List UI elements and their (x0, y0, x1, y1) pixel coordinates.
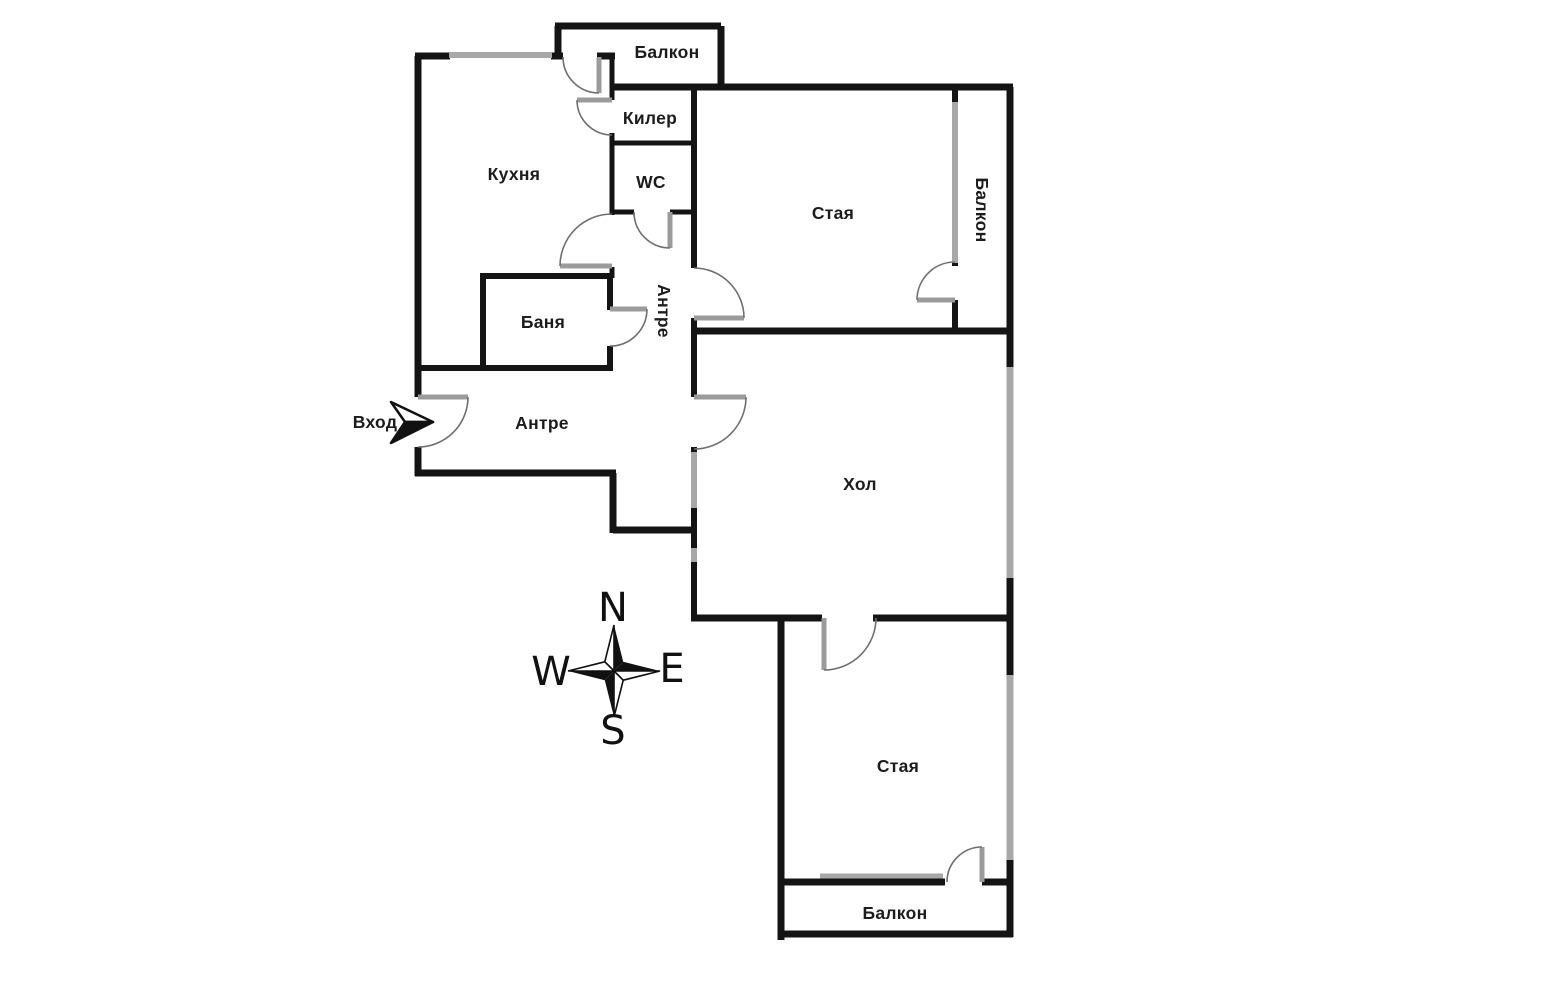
room-label-entrance: Вход (353, 412, 397, 432)
floor-plan-drawing: Балкон Килер WC Кухня Стая Балкон Антре … (0, 0, 1559, 997)
entrance-arrow-icon (391, 402, 433, 443)
inner-walls (415, 56, 955, 621)
door-closet (577, 100, 612, 135)
compass-rose-icon (568, 625, 660, 717)
room-label-closet: Килер (623, 108, 677, 128)
door-roombottom (824, 618, 876, 670)
room-label-wc: WC (636, 172, 666, 192)
door-kitchen-balcony (563, 57, 599, 93)
room-label-room-top: Стая (812, 203, 854, 223)
door-arc (824, 618, 876, 670)
door-bathroom (610, 309, 647, 346)
door-arc (577, 100, 612, 135)
floor-plan-canvas: Балкон Килер WC Кухня Стая Балкон Антре … (0, 0, 1559, 997)
room-label-entry-hall: Антре (515, 413, 569, 433)
door-wc (634, 212, 670, 248)
wall-entry-bottom (415, 473, 697, 533)
door-arc (694, 268, 744, 318)
room-label-kitchen: Кухня (488, 164, 541, 184)
door-arc (917, 262, 955, 300)
door-roombottom-balcony (947, 847, 982, 882)
door-kitchen (560, 214, 612, 266)
door-arc (610, 309, 647, 346)
room-label-living-room: Хол (843, 474, 877, 494)
door-arc (947, 847, 982, 882)
door-room-top (694, 268, 744, 318)
compass-label-east: E (659, 646, 684, 692)
compass-label-west: W (531, 649, 571, 695)
room-label-bathroom: Баня (521, 312, 565, 332)
compass-label-north: N (598, 585, 628, 631)
door-roomtop-balcony (917, 262, 955, 300)
room-label-corridor: Антре (654, 284, 674, 338)
door-arc (560, 214, 612, 266)
door-arc (563, 57, 599, 93)
room-label-balcony-bottom: Балкон (862, 903, 927, 923)
door-living (694, 397, 746, 449)
room-labels: Балкон Килер WC Кухня Стая Балкон Антре … (353, 42, 992, 923)
room-label-room-bottom: Стая (877, 756, 919, 776)
room-label-balcony-top: Балкон (634, 42, 699, 62)
door-arc (634, 212, 670, 248)
compass-label-south: S (600, 708, 625, 754)
door-arc (694, 397, 746, 449)
room-label-balcony-right: Балкон (972, 177, 992, 242)
